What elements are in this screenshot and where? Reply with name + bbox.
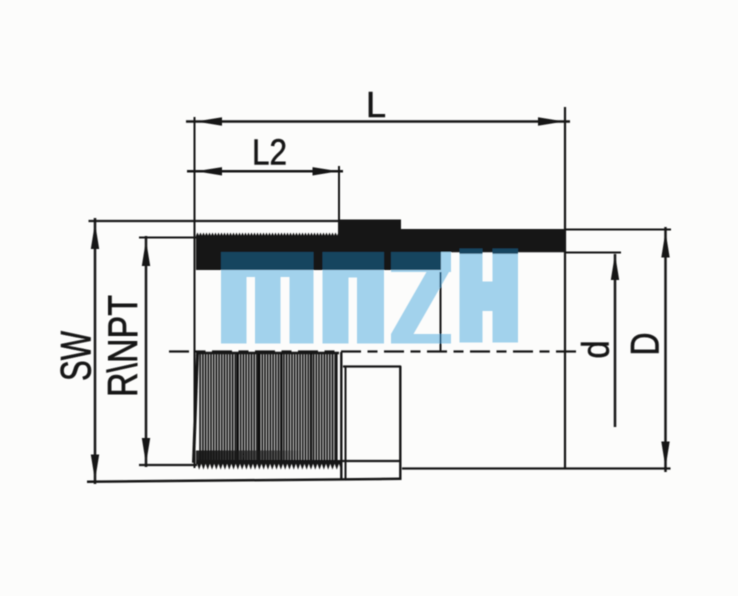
svg-text:D: D (624, 333, 668, 356)
svg-text:R\NPT: R\NPT (99, 295, 146, 397)
svg-text:d: d (576, 341, 618, 359)
svg-text:SW: SW (53, 331, 101, 381)
svg-text:L2: L2 (252, 132, 287, 173)
svg-text:L: L (366, 84, 386, 125)
